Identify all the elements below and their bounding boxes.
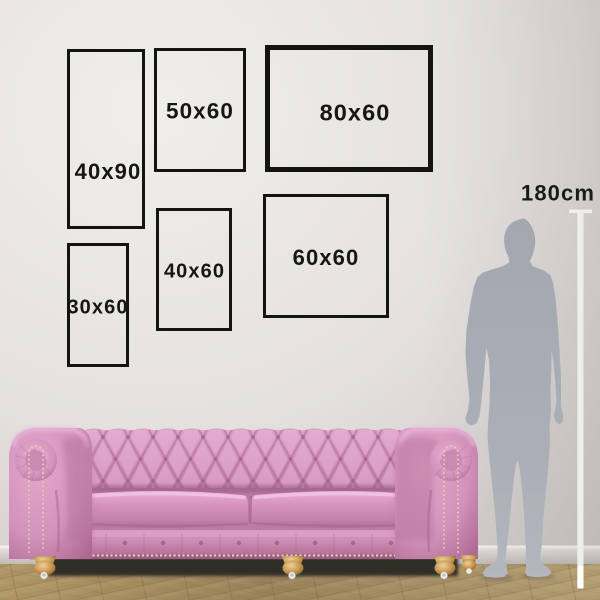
svg-text:30x60: 30x60 [67, 297, 128, 319]
svg-text:50x60: 50x60 [166, 99, 234, 124]
svg-text:40x90: 40x90 [75, 159, 142, 184]
svg-text:60x60: 60x60 [293, 245, 360, 270]
svg-text:40x60: 40x60 [164, 261, 225, 283]
svg-text:80x60: 80x60 [320, 100, 391, 126]
